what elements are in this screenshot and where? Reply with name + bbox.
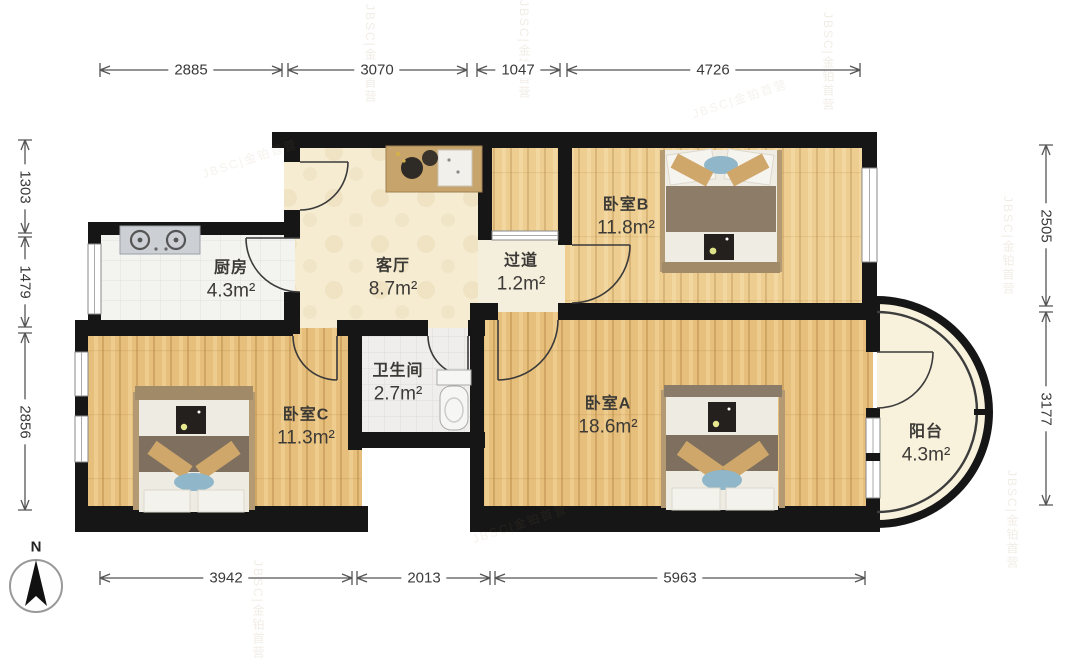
room-area: 8.7m² bbox=[369, 277, 418, 302]
bed-bedroom-b bbox=[660, 149, 782, 273]
dim-left-2: 1479 bbox=[17, 259, 34, 304]
room-name: 卧室C bbox=[277, 405, 335, 426]
room-label-hallway: 过道 1.2m² bbox=[497, 251, 546, 296]
room-area: 2.7m² bbox=[372, 382, 423, 407]
room-label-kitchen: 厨房 4.3m² bbox=[207, 258, 256, 303]
bed-bedroom-c bbox=[133, 386, 255, 512]
room-name: 卧室B bbox=[597, 195, 655, 216]
room-name: 卫生间 bbox=[372, 361, 423, 382]
room-name: 阳台 bbox=[902, 422, 951, 443]
toilet bbox=[437, 370, 471, 430]
floor-plan-page: 厨房 4.3m² 客厅 8.7m² 过道 1.2m² 卧室B 11.8m² 卧室… bbox=[0, 0, 1080, 666]
dim-right-1: 2505 bbox=[1038, 203, 1055, 248]
room-area: 11.3m² bbox=[277, 426, 335, 451]
living-table bbox=[386, 146, 482, 192]
room-area: 1.2m² bbox=[497, 272, 546, 297]
dim-bottom-2: 2013 bbox=[401, 570, 446, 587]
dim-top-1: 2885 bbox=[168, 62, 213, 79]
dim-top-3: 1047 bbox=[495, 62, 540, 79]
stove bbox=[120, 226, 200, 254]
room-area: 11.8m² bbox=[597, 216, 655, 241]
dim-right-2: 3177 bbox=[1038, 386, 1055, 431]
dim-top-4: 4726 bbox=[690, 62, 735, 79]
room-name: 卧室A bbox=[578, 394, 637, 415]
compass bbox=[10, 560, 62, 612]
room-label-bathroom: 卫生间 2.7m² bbox=[372, 361, 423, 406]
room-area: 4.3m² bbox=[207, 279, 256, 304]
room-label-bedroom-b: 卧室B 11.8m² bbox=[597, 195, 655, 240]
room-area: 4.3m² bbox=[902, 443, 951, 468]
room-label-bedroom-a: 卧室A 18.6m² bbox=[578, 394, 637, 439]
floor-plan-drawing bbox=[0, 0, 1080, 666]
room-name: 厨房 bbox=[207, 258, 256, 279]
dim-left-3: 2856 bbox=[17, 399, 34, 444]
room-area: 18.6m² bbox=[578, 415, 637, 440]
dim-bottom-1: 3942 bbox=[203, 570, 248, 587]
dim-top-2: 3070 bbox=[354, 62, 399, 79]
north-label: N bbox=[31, 539, 42, 556]
room-label-living: 客厅 8.7m² bbox=[369, 256, 418, 301]
room-label-bedroom-c: 卧室C 11.3m² bbox=[277, 405, 335, 450]
room-label-balcony: 阳台 4.3m² bbox=[902, 422, 951, 467]
bed-bedroom-a bbox=[661, 385, 785, 510]
room-name: 过道 bbox=[497, 251, 546, 272]
dim-bottom-3: 5963 bbox=[657, 570, 702, 587]
balcony-floor bbox=[877, 302, 987, 522]
room-name: 客厅 bbox=[369, 256, 418, 277]
dim-left-1: 1303 bbox=[17, 164, 34, 209]
